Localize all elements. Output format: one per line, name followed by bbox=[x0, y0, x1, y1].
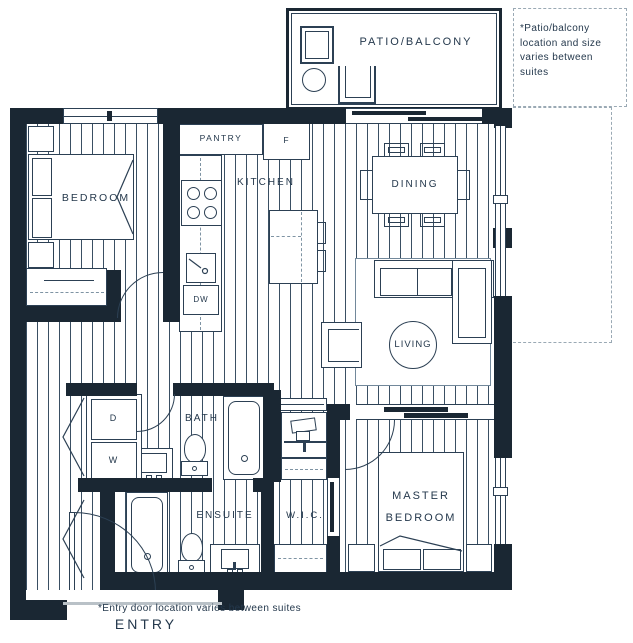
bedroom-window bbox=[63, 108, 158, 124]
wall bbox=[66, 383, 137, 396]
bedroom-nightstand-top bbox=[28, 126, 54, 152]
chair-inner bbox=[388, 147, 405, 153]
master-sliding-door bbox=[356, 404, 494, 420]
master-label-line2: BEDROOM bbox=[360, 512, 482, 524]
island-stool-1 bbox=[317, 222, 326, 244]
bedroom-closet-rod bbox=[30, 292, 104, 293]
island-dash-v bbox=[301, 212, 302, 282]
entry-threshold bbox=[67, 590, 218, 602]
island-stool-2 bbox=[317, 250, 326, 272]
ensuite-toilet-button bbox=[189, 565, 194, 570]
window-glazing-line bbox=[500, 126, 501, 296]
chair-inner bbox=[388, 217, 405, 223]
bedroom-nightstand-bottom bbox=[28, 242, 54, 268]
patio-label: PATIO/BALCONY bbox=[336, 36, 496, 48]
living-window bbox=[495, 126, 506, 296]
master-pillow-1 bbox=[383, 549, 421, 570]
wic-sliding-door bbox=[327, 478, 340, 536]
nook-closet-rod bbox=[285, 469, 323, 470]
dining-chair-right bbox=[457, 170, 470, 200]
dining-label: DINING bbox=[374, 179, 456, 190]
bath-label: BATH bbox=[180, 413, 224, 424]
dining-chair-top-2 bbox=[420, 143, 445, 157]
wall bbox=[340, 404, 350, 420]
patio-chair bbox=[338, 66, 376, 104]
wall bbox=[494, 296, 512, 458]
patio-variable-extent bbox=[513, 107, 612, 343]
patio-note-text: *Patio/balcony location and size varies … bbox=[520, 22, 622, 80]
entry-door-leaf bbox=[69, 512, 75, 594]
wall bbox=[494, 108, 512, 128]
island-dash-h bbox=[271, 236, 301, 237]
dryer-label: D bbox=[91, 413, 137, 423]
fridge-label: F bbox=[263, 135, 310, 145]
dining-chair-bottom-1 bbox=[384, 213, 409, 227]
bath-sink bbox=[139, 453, 167, 473]
window-glazing-line bbox=[500, 458, 501, 544]
ensuite-label: ENSUITE bbox=[188, 510, 262, 521]
window-mullion-tick bbox=[493, 195, 508, 204]
armchair-seat bbox=[328, 329, 359, 362]
desk-chair-seat bbox=[296, 431, 310, 441]
ensuite-toilet-bowl bbox=[181, 533, 203, 562]
slider-panel-1 bbox=[384, 407, 448, 412]
chair-inner bbox=[424, 217, 441, 223]
living-armchair bbox=[321, 322, 362, 368]
bath-tub bbox=[223, 396, 265, 480]
master-pillow-2 bbox=[423, 549, 461, 570]
sofa-cushion-divider bbox=[417, 268, 418, 296]
bath-tub-drain bbox=[241, 455, 248, 462]
kitchen-sink bbox=[186, 253, 216, 283]
wall bbox=[10, 600, 67, 620]
washer-label: W bbox=[91, 455, 137, 465]
desk-chair-stem bbox=[303, 443, 306, 452]
dining-chair-top-1 bbox=[384, 143, 409, 157]
slider-panel-1 bbox=[330, 482, 334, 532]
bath-toilet-button bbox=[192, 466, 197, 471]
wall bbox=[78, 478, 212, 492]
dining-chair-bottom-2 bbox=[420, 213, 445, 227]
patio-table bbox=[300, 26, 334, 64]
patio-chair-round bbox=[302, 68, 326, 92]
sofa-chaise-cushion bbox=[458, 268, 486, 338]
window-mullion-tick bbox=[493, 487, 508, 496]
nook-shelf bbox=[277, 398, 327, 411]
entry-note-text: *Entry door location varies between suit… bbox=[98, 603, 398, 614]
wall bbox=[173, 383, 274, 396]
wall bbox=[26, 306, 120, 322]
wall bbox=[327, 404, 340, 478]
living-label: LIVING bbox=[389, 339, 437, 350]
bedroom-label: BEDROOM bbox=[38, 192, 154, 204]
wall bbox=[10, 108, 26, 620]
kitchen-label: KITCHEN bbox=[229, 177, 303, 188]
master-window bbox=[495, 458, 506, 544]
master-nightstand-left bbox=[348, 544, 375, 572]
wall bbox=[100, 572, 512, 590]
chair-inner bbox=[424, 147, 441, 153]
slider-panel-1 bbox=[352, 111, 426, 115]
wall bbox=[163, 124, 180, 322]
window-mullion bbox=[107, 111, 112, 121]
ensuite-faucet-stem bbox=[233, 562, 236, 570]
stove bbox=[181, 180, 222, 226]
burner-1 bbox=[187, 187, 200, 200]
slider-panel-2 bbox=[404, 413, 468, 418]
patio-sliding-door bbox=[346, 108, 482, 124]
burner-4 bbox=[204, 206, 217, 219]
patio-table-top bbox=[305, 31, 329, 59]
wic-closet-rod bbox=[278, 558, 323, 559]
pantry-label: PANTRY bbox=[181, 133, 261, 143]
bath-tub-basin bbox=[228, 401, 260, 475]
wall bbox=[261, 478, 274, 578]
patio-chair-seat bbox=[345, 66, 371, 98]
burner-3 bbox=[187, 206, 200, 219]
master-label-line1: MASTER bbox=[360, 490, 482, 502]
nook-shelf-line bbox=[280, 404, 324, 405]
slider-panel-2 bbox=[408, 117, 482, 121]
wall bbox=[158, 108, 346, 124]
burner-2 bbox=[204, 187, 217, 200]
bedroom-pillow-1 bbox=[32, 158, 52, 196]
bedroom-closet bbox=[26, 268, 107, 306]
desk-nook bbox=[281, 412, 327, 458]
master-nightstand-right bbox=[466, 544, 492, 572]
wall bbox=[263, 390, 281, 482]
bedroom-closet-shelf bbox=[44, 280, 94, 281]
entry-label: ENTRY bbox=[76, 616, 216, 632]
dining-chair-left bbox=[360, 170, 373, 200]
sofa-seat bbox=[380, 268, 452, 296]
kitchen-island bbox=[269, 210, 318, 284]
bedroom-pillow-2 bbox=[32, 198, 52, 238]
floor-plan: PATIO/BALCONY *Patio/balcony location an… bbox=[0, 0, 633, 643]
bath-toilet-bowl bbox=[184, 434, 206, 463]
wall bbox=[327, 536, 340, 578]
dishwasher-label: DW bbox=[183, 295, 219, 304]
